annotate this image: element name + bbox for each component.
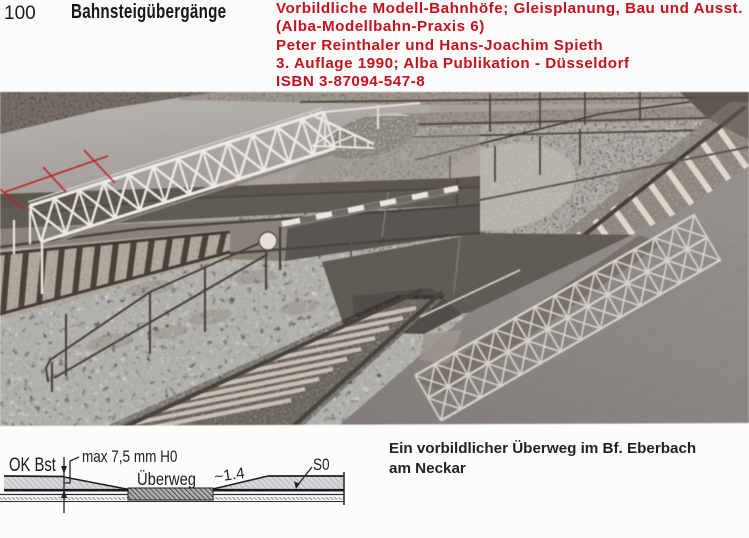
svg-text:max 7,5 mm H0: max 7,5 mm H0	[82, 448, 177, 467]
svg-text:Überweg: Überweg	[137, 470, 196, 490]
svg-text:OK Bst: OK Bst	[9, 454, 56, 475]
svg-text:S0: S0	[313, 456, 330, 475]
